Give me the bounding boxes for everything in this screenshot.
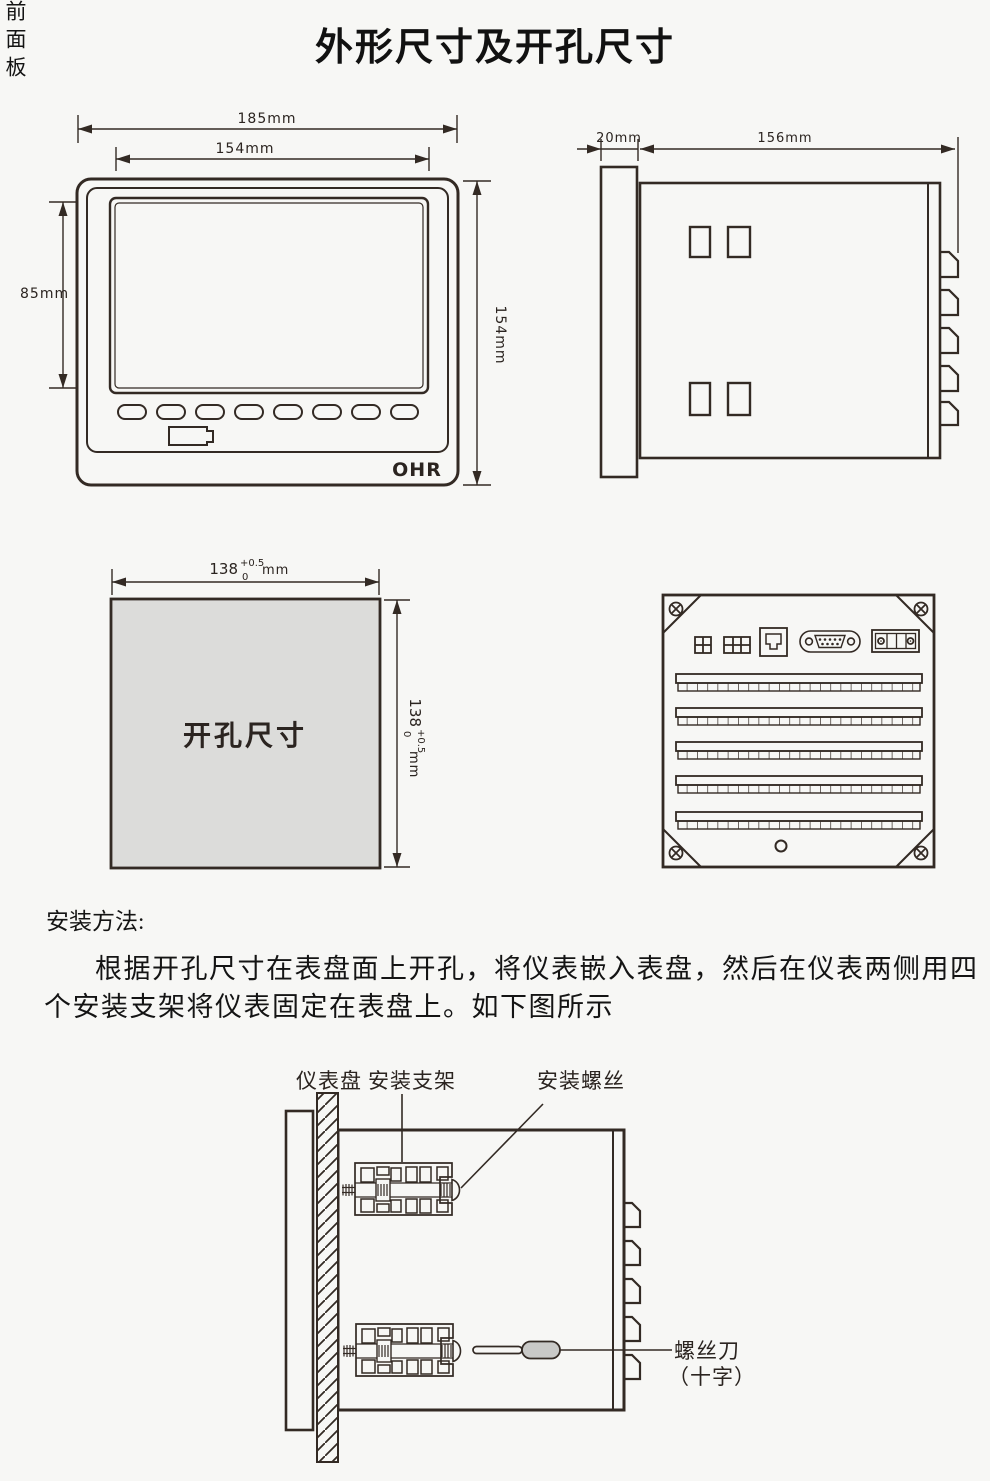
side-view: 20mm 156mm [577,131,958,477]
screw-icon [915,847,928,860]
back-view [663,595,934,867]
front-button [313,405,341,419]
front-dim-width-outer: 185mm [78,111,457,143]
front-dim-height-outer-label: 154mm [492,306,508,365]
front-case-outline [77,179,458,485]
terminal-strips [676,674,922,829]
front-dim-width-outer-label: 185mm [238,111,297,127]
cutout-height-tol-upper: +0.5 [415,729,426,753]
side-dim-bezel-depth: 20mm [577,131,642,161]
cutout-dim-height: 138 +0.5 0 mm [384,600,426,867]
front-panel-plate [286,1111,313,1430]
side-rear-tabs [940,252,958,425]
cutout-height-tol-lower: 0 [401,731,412,737]
screw-icon [670,847,683,860]
install-paragraph-line2: 个安装支架将仪表固定在表盘上。如下图所示 [44,985,614,1024]
rear-tab [940,366,958,391]
label-instrument-panel: 仪表盘 [296,1069,362,1093]
front-button [235,405,263,419]
side-vent [728,383,750,415]
front-button [274,405,302,419]
label-screwdriver-type: （十字） [668,1365,756,1389]
front-dim-width-screen: 154mm [116,141,429,171]
side-vents [690,227,750,415]
rear-tab [624,1355,640,1379]
mounting-bracket-bottom [343,1324,461,1376]
screwdriver-handle [522,1342,560,1359]
front-bezel-inner [87,188,448,452]
rear-tab [624,1317,640,1341]
cutout-label: 开孔尺寸 [183,720,307,752]
front-button [391,405,418,419]
terminal-block-connector [872,630,919,652]
screwdriver [473,1342,560,1359]
side-dim-bezel-depth-label: 20mm [596,131,642,146]
back-center-hole [776,841,787,852]
mounting-bracket-top [342,1163,460,1215]
screw-leader-line [461,1104,543,1188]
install-paragraph-line1: 根据开孔尺寸在表盘面上开孔，将仪表嵌入表盘，然后在仪表两侧用四 [95,947,979,986]
rear-tab [624,1203,640,1227]
cutout-width-tol-lower: 0 [242,572,248,583]
page: 外形尺寸及开孔尺寸 185mm [0,0,990,1481]
rear-tab [940,402,958,425]
rear-tab [940,252,958,277]
cutout-width-tol-upper: +0.5 [240,558,264,569]
terminal-strip [676,674,922,691]
brand-logo: OHR [392,459,442,481]
front-dim-width-screen-label: 154mm [216,141,275,157]
front-buttons [118,405,418,419]
install-rear-tabs [624,1203,640,1379]
front-dim-height-screen: 85mm [20,202,77,388]
usb-port [169,427,213,445]
terminal-strip [676,742,922,759]
front-screen [110,198,428,393]
relay-connector [724,637,750,653]
screw-icon [670,603,683,616]
terminal-strip [676,812,922,829]
front-dim-height-outer: 154mm [463,181,508,485]
install-heading: 安装方法: [46,902,144,936]
side-dim-body-depth: 156mm [640,131,958,253]
label-screwdriver: 螺丝刀 [674,1339,740,1363]
rear-tab [624,1279,640,1303]
serial-port [800,631,860,652]
ethernet-port [760,628,787,656]
front-view: 185mm 154mm 85mm [20,111,508,485]
screwdriver-shaft [473,1347,522,1354]
cutout-width-unit: mm [262,563,289,578]
front-button [352,405,380,419]
rear-tab [940,290,958,315]
front-dim-height-screen-label: 85mm [20,286,69,302]
cutout-height-value: 138 [406,698,424,727]
side-body [640,183,940,458]
terminal-strip [676,708,922,725]
instrument-body-side [338,1130,624,1410]
mounting-panel-hatch [317,1093,338,1462]
label-mounting-bracket: 安装支架 [368,1069,456,1093]
label-mounting-screw: 安装螺丝 [537,1069,625,1093]
front-button [118,405,146,419]
side-vent [690,383,710,415]
side-dim-body-depth-label: 156mm [757,131,812,146]
front-button [196,405,224,419]
screw-icon [915,603,928,616]
terminal-strip [676,776,922,793]
rear-tab [940,328,958,353]
cutout-view: 138 +0.5 0 mm 138 +0.5 0 mm [111,558,426,868]
front-screen-inner-line [115,203,423,388]
cutout-height-unit: mm [406,751,421,778]
rear-tab [624,1241,640,1265]
front-button [157,405,185,419]
cutout-width-value: 138 [209,560,238,578]
install-diagram: 仪表盘 安装支架 安装螺丝 螺丝刀 （十字） [0,1040,990,1481]
side-vent [690,227,710,257]
power-connector [695,637,711,653]
cutout-dim-width: 138 +0.5 0 mm [112,558,379,595]
side-bezel [601,167,637,477]
dimension-figures: 185mm 154mm 85mm [0,0,990,1040]
side-vent [728,227,750,257]
